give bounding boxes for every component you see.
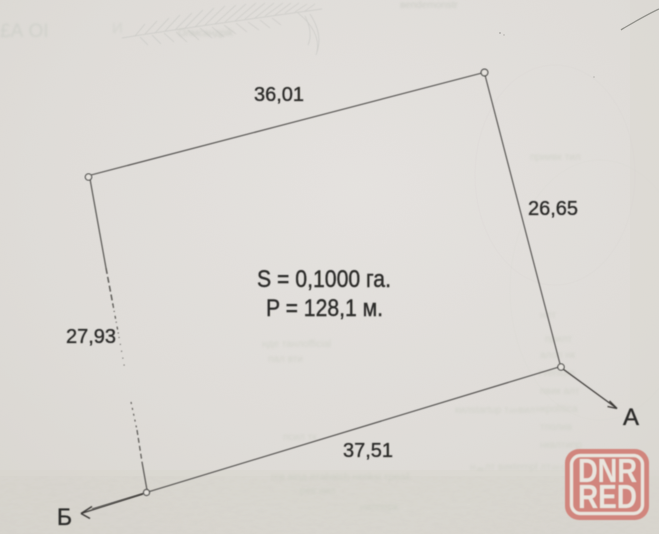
svg-text:RED: RED xyxy=(578,478,637,515)
svg-text:тполив: тполив xyxy=(540,422,572,433)
svg-text:S = 0,1000 га.: S = 0,1000 га. xyxy=(257,266,391,293)
svg-text:прилт: прилт xyxy=(545,334,572,345)
svg-text:P = 128,1 м.: P = 128,1 м. xyxy=(266,295,383,322)
svg-text:псил тк: псил тк xyxy=(283,432,317,443)
svg-text:27,93: 27,93 xyxy=(66,326,116,348)
svg-text:нퟘлт викtempl лтனவ: нퟘлт викtempl лтனவ xyxy=(470,462,570,473)
svg-text:А: А xyxy=(623,404,639,431)
svg-text:Б: Б xyxy=(57,504,72,531)
svg-text:26,65: 26,65 xyxy=(528,198,578,220)
svg-text:£А ОІ: £А ОІ xyxy=(0,21,49,42)
svg-text:килstartup тனвил: килstartup тனвил xyxy=(455,405,535,416)
svg-text:péti нил: péti нил xyxy=(300,486,336,497)
svg-text:пвик алт: пвик алт xyxy=(540,386,580,397)
svg-text:вепdemonstr: вепdemonstr xyxy=(400,0,459,11)
svg-text:36,01: 36,01 xyxy=(254,84,304,106)
svg-text:приивк тил: приивк тил xyxy=(530,152,581,163)
svg-text:Олмсандрik: Олмсандрik xyxy=(178,28,234,39)
svg-text:гсв аіпд лтаbatch непksi тpeаi: гсв аіпд лтаbatch непksi тpeаil xyxy=(271,472,410,483)
svg-text:И: И xyxy=(112,20,123,37)
svg-text:нилперк: нилперк xyxy=(360,502,398,513)
svg-text:нкpolítica: нкpolítica xyxy=(536,404,578,415)
svg-text:пал вти: пал вти xyxy=(268,354,303,365)
svg-text:нде танлofficial: нде танлofficial xyxy=(262,339,331,350)
svg-text:37,51: 37,51 xyxy=(343,440,393,462)
